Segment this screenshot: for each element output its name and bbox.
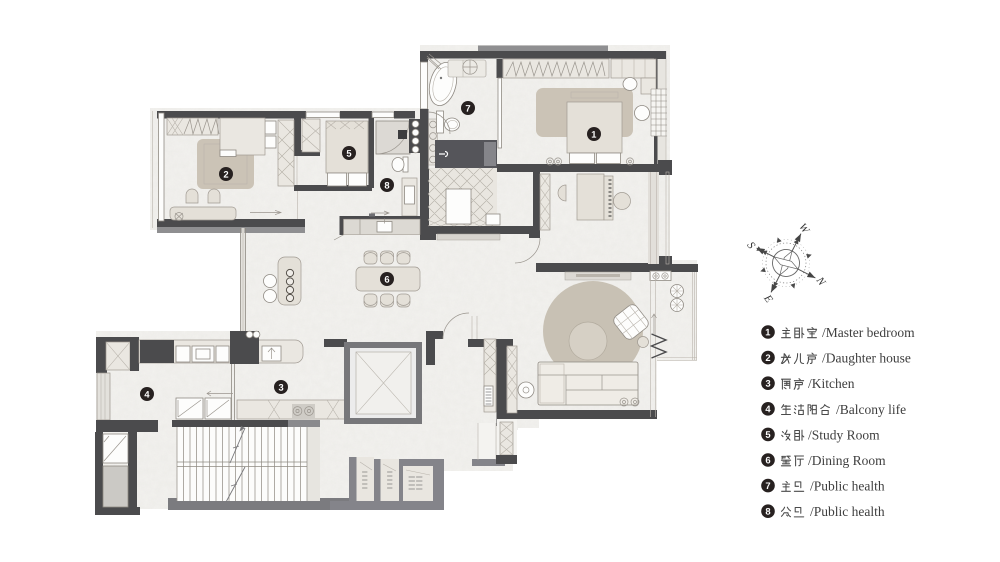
svg-text:/Dining Room: /Dining Room	[808, 453, 886, 468]
svg-text:E: E	[761, 292, 775, 306]
svg-text:/Daughter house: /Daughter house	[822, 351, 911, 366]
svg-text:/Public health: /Public health	[810, 479, 885, 494]
svg-text:W: W	[796, 221, 812, 236]
svg-text:/Public health: /Public health	[810, 504, 885, 519]
svg-text:/Kitchen: /Kitchen	[808, 376, 855, 391]
svg-text:/Study Room: /Study Room	[808, 427, 880, 442]
svg-text:/Master bedroom: /Master bedroom	[822, 325, 915, 340]
svg-text:S: S	[744, 240, 757, 252]
svg-text:/Balcony life: /Balcony life	[836, 402, 906, 417]
svg-text:N: N	[813, 274, 828, 288]
